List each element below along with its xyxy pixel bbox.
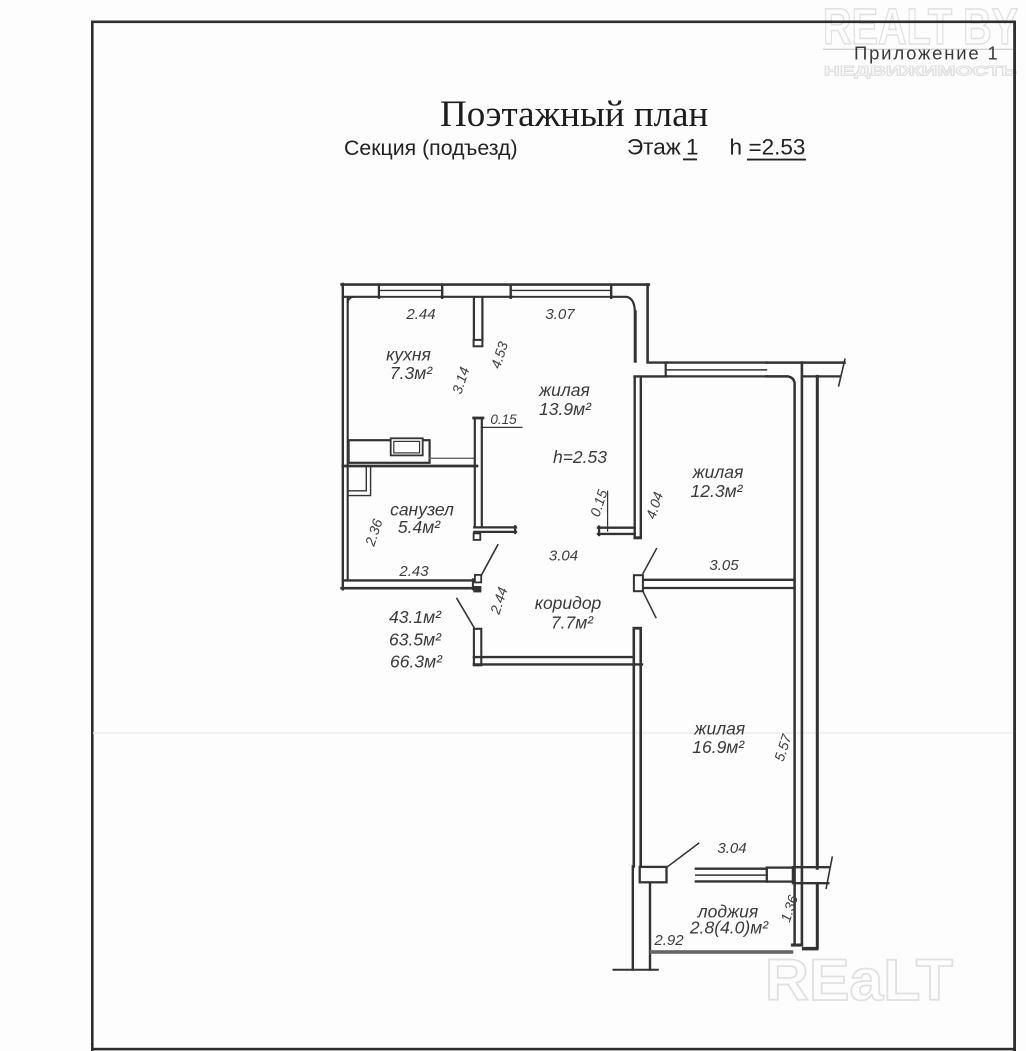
svg-text:7.3м²: 7.3м² xyxy=(390,363,433,383)
svg-text:2.92: 2.92 xyxy=(653,932,684,949)
svg-text:12.3м²: 12.3м² xyxy=(691,481,744,501)
svg-text:НЕДВИЖИМОСТЬ: НЕДВИЖИМОСТЬ xyxy=(824,64,1017,79)
svg-text:жилая: жилая xyxy=(693,719,745,739)
svg-text:жилая: жилая xyxy=(538,380,590,400)
svg-text:63.5м²: 63.5м² xyxy=(389,630,442,650)
svg-text:3.05: 3.05 xyxy=(709,557,739,574)
svg-text:h=2.53: h=2.53 xyxy=(553,447,607,467)
svg-text:h: h xyxy=(730,135,743,160)
svg-text:Этаж: Этаж xyxy=(627,135,681,160)
svg-text:REaLT: REaLT xyxy=(765,948,953,1013)
svg-text:3.07: 3.07 xyxy=(545,306,575,323)
svg-text:0.15: 0.15 xyxy=(490,412,517,427)
svg-text:жилая: жилая xyxy=(692,462,744,482)
svg-text:=2.53: =2.53 xyxy=(749,135,806,160)
svg-text:13.9м²: 13.9м² xyxy=(539,399,592,419)
svg-text:Секция (подъезд): Секция (подъезд) xyxy=(344,136,518,160)
svg-text:7.7м²: 7.7м² xyxy=(551,613,594,633)
svg-text:16.9м²: 16.9м² xyxy=(692,737,745,757)
svg-text:2.8(4.0)м²: 2.8(4.0)м² xyxy=(689,918,769,938)
svg-text:5.4м²: 5.4м² xyxy=(398,517,441,537)
svg-text:3.04: 3.04 xyxy=(717,840,746,857)
svg-text:коридор: коридор xyxy=(535,593,602,613)
svg-text:Поэтажный план: Поэтажный план xyxy=(440,94,708,135)
svg-text:2.44: 2.44 xyxy=(405,306,435,323)
svg-text:66.3м²: 66.3м² xyxy=(390,652,443,672)
svg-text:2.43: 2.43 xyxy=(398,563,429,580)
svg-text:43.1м²: 43.1м² xyxy=(389,607,442,627)
svg-text:Приложение 1: Приложение 1 xyxy=(854,43,1000,64)
svg-text:3.04: 3.04 xyxy=(549,548,578,565)
svg-text:1: 1 xyxy=(686,135,699,160)
svg-text:кухня: кухня xyxy=(386,345,431,365)
